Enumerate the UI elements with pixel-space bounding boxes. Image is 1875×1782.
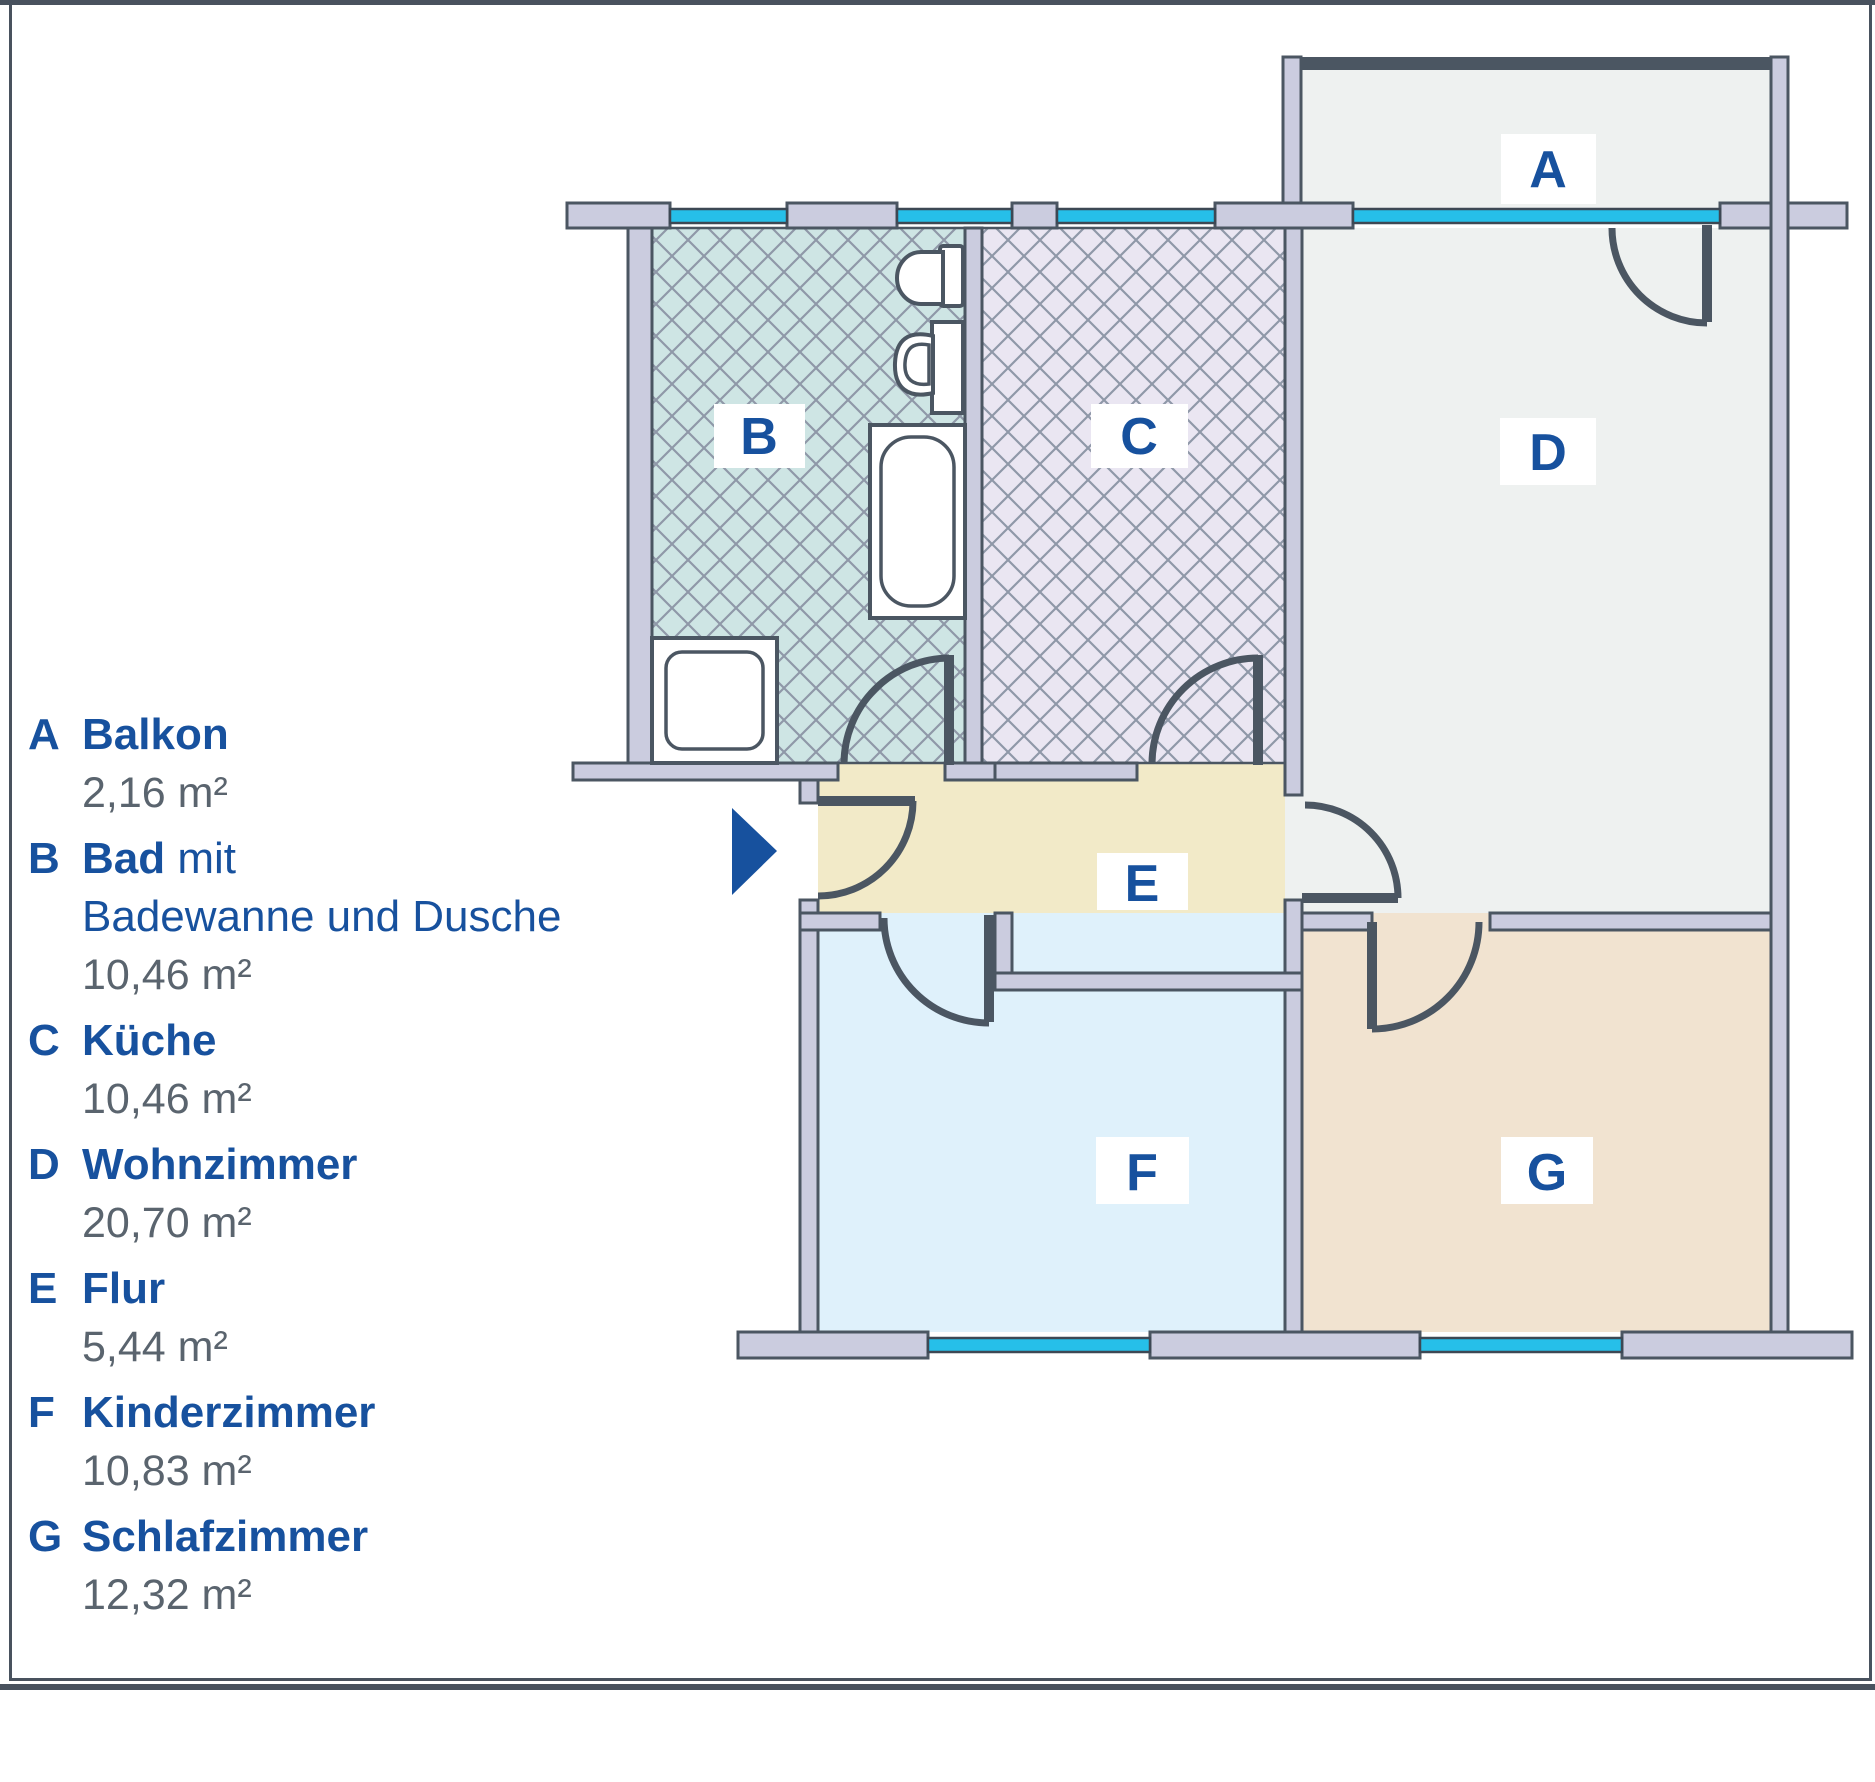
- wall-bath-kitchen: [965, 228, 982, 763]
- legend-letter: D: [28, 1136, 82, 1252]
- sink-basin-inner: [905, 344, 929, 384]
- room-area-living: [1285, 228, 1771, 913]
- wall-child-bed-divider: [1285, 900, 1302, 1332]
- bed-door-leaf: [1367, 922, 1377, 1029]
- wall-hall-child-top: [800, 913, 880, 930]
- plan-letter-b: B: [740, 408, 778, 466]
- entrance-arrow-icon: [732, 808, 777, 895]
- legend-room-area: 10,83 m²: [82, 1442, 588, 1500]
- frame-top-bar: [0, 0, 1875, 5]
- legend-letter: C: [28, 1012, 82, 1128]
- plan-label-bath: B: [714, 404, 805, 468]
- legend-body: Kinderzimmer 10,83 m²: [82, 1384, 588, 1500]
- plan-label-living: D: [1500, 418, 1596, 485]
- wall-kitchen-living: [1285, 228, 1302, 795]
- legend-room-area: 10,46 m²: [82, 946, 588, 1004]
- plan-label-bed: G: [1501, 1137, 1593, 1204]
- bath-door-leaf: [944, 655, 954, 765]
- legend-room-name-suffix: mit: [165, 834, 236, 883]
- kitchen-door-leaf: [1253, 655, 1263, 765]
- wall-top-pillar-2: [1012, 203, 1057, 228]
- wall-bottom-middle: [1150, 1332, 1420, 1358]
- legend-item-bad: B Bad mit Badewanne und Dusche 10,46 m²: [28, 830, 588, 1004]
- shower-inner: [666, 652, 763, 749]
- frame-right-border: [1869, 5, 1872, 1681]
- frame-bottom-bar: [0, 1684, 1875, 1690]
- legend-room-area: 12,32 m²: [82, 1566, 588, 1624]
- balcony-door-leaf: [1702, 225, 1712, 322]
- legend-body: Balkon 2,16 m²: [82, 706, 588, 822]
- legend-room-name: Wohnzimmer: [82, 1140, 357, 1189]
- legend-room-name: Küche: [82, 1016, 216, 1065]
- plan-letter-c: C: [1120, 408, 1158, 466]
- plan-letter-e: E: [1125, 855, 1160, 913]
- entry-door-leaf: [818, 796, 915, 806]
- child-door-leaf: [984, 915, 994, 1022]
- kitchen-tile-hatch: [982, 228, 1285, 763]
- legend-room-name: Bad: [82, 834, 165, 883]
- wall-bath-left: [628, 228, 652, 780]
- legend-body: Schlafzimmer 12,32 m²: [82, 1508, 588, 1624]
- wall-top-left-stub: [567, 203, 670, 228]
- plan-letter-g: G: [1527, 1144, 1567, 1202]
- wall-bottom-left: [738, 1332, 928, 1358]
- window-bed: [1420, 1338, 1622, 1352]
- plan-label-child: F: [1096, 1137, 1189, 1204]
- legend-item-schlafzimmer: G Schlafzimmer 12,32 m²: [28, 1508, 588, 1624]
- wall-top-pillar-1: [787, 203, 897, 228]
- sink-counter-icon: [932, 322, 963, 413]
- wall-bath-bottom-stub: [945, 763, 995, 780]
- wall-bath-bottom: [573, 763, 838, 780]
- plan-letter-a: A: [1529, 141, 1567, 199]
- legend-letter: E: [28, 1260, 82, 1376]
- legend-letter: B: [28, 830, 82, 1004]
- frame-left-border: [9, 5, 12, 1681]
- balcony-parapet: [1288, 57, 1784, 70]
- legend-room-area: 20,70 m²: [82, 1194, 588, 1252]
- legend-room-area: 10,46 m²: [82, 1070, 588, 1128]
- wall-right-outer: [1771, 57, 1788, 1347]
- wall-hall-bottom: [995, 973, 1302, 990]
- legend-body: Küche 10,46 m²: [82, 1012, 588, 1128]
- plan-letter-f: F: [1126, 1144, 1158, 1202]
- legend-item-flur: E Flur 5,44 m²: [28, 1260, 588, 1376]
- bathtub-inner: [881, 437, 954, 606]
- floorplan-page: { "colors": { "accent_blue": "#17519e", …: [0, 0, 1875, 1782]
- window-kitchen-1: [897, 209, 1012, 223]
- legend-body: Flur 5,44 m²: [82, 1260, 588, 1376]
- plan-letter-d: D: [1529, 424, 1567, 482]
- legend-room-name: Balkon: [82, 710, 229, 759]
- living-door-leaf: [1302, 893, 1398, 903]
- plan-label-hall: E: [1097, 853, 1188, 913]
- legend-item-balkon: A Balkon 2,16 m²: [28, 706, 588, 822]
- window-child: [928, 1338, 1150, 1352]
- wall-kitchen-bottom: [995, 763, 1137, 780]
- plan-label-balcony: A: [1501, 134, 1596, 204]
- wall-balcony-left-pillar: [1283, 57, 1301, 203]
- legend-item-wohnzimmer: D Wohnzimmer 20,70 m²: [28, 1136, 588, 1252]
- legend-item-kueche: C Küche 10,46 m²: [28, 1012, 588, 1128]
- legend-body: Wohnzimmer 20,70 m²: [82, 1136, 588, 1252]
- plan-label-kitchen: C: [1091, 404, 1188, 468]
- legend-room-name-line2: Badewanne und Dusche: [82, 888, 588, 946]
- legend-letter: G: [28, 1508, 82, 1624]
- wall-bed-top-left: [1302, 913, 1372, 930]
- legend-room-area: 2,16 m²: [82, 764, 588, 822]
- room-legend: A Balkon 2,16 m² B Bad mit Badewanne und…: [28, 706, 588, 1632]
- legend-item-kinderzimmer: F Kinderzimmer 10,83 m²: [28, 1384, 588, 1500]
- legend-body: Bad mit Badewanne und Dusche 10,46 m²: [82, 830, 588, 1004]
- wall-hall-child-left: [800, 900, 818, 1332]
- legend-room-name: Flur: [82, 1264, 165, 1313]
- legend-room-name: Schlafzimmer: [82, 1512, 368, 1561]
- window-balcony: [1353, 209, 1720, 223]
- window-bath: [670, 209, 787, 223]
- frame-bottom-border: [9, 1678, 1872, 1681]
- legend-letter: A: [28, 706, 82, 822]
- wall-hall-left-upper: [800, 780, 818, 803]
- toilet-bowl-icon: [897, 252, 943, 304]
- legend-room-area: 5,44 m²: [82, 1318, 588, 1376]
- wall-bed-top-right: [1490, 913, 1771, 930]
- wall-top-junction: [1215, 203, 1353, 228]
- window-kitchen-2: [1057, 209, 1215, 223]
- legend-room-name: Kinderzimmer: [82, 1388, 375, 1437]
- wall-bottom-right-stub: [1622, 1332, 1852, 1358]
- legend-letter: F: [28, 1384, 82, 1500]
